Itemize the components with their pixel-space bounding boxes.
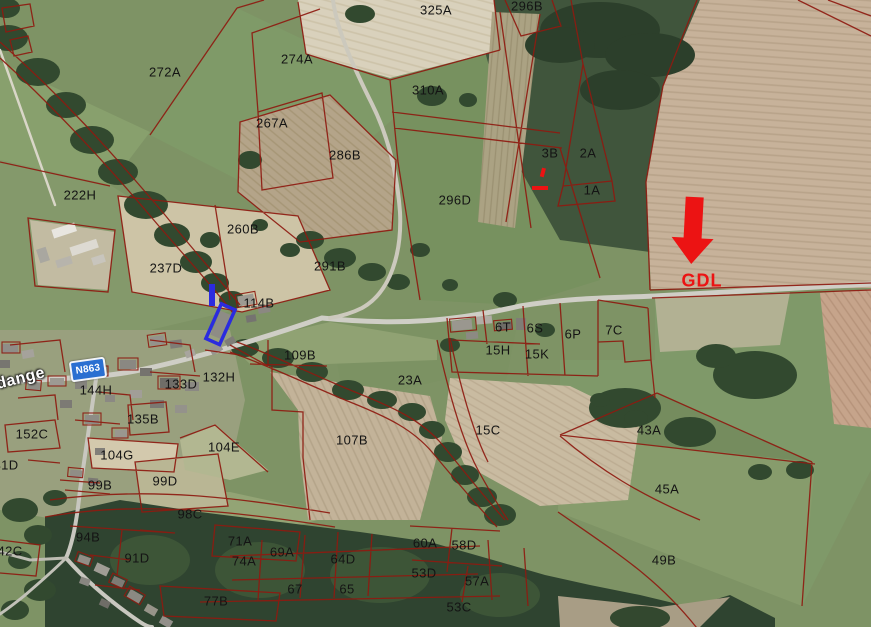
red-dash-icon [532,186,548,190]
aerial-basemap [0,0,871,627]
road-shield-label: N863 [75,362,101,376]
map-canvas[interactable]: 325A296B274A272A310A267A286B3B2A1A296D22… [0,0,871,627]
gdl-marker-label: GDL [682,271,723,292]
